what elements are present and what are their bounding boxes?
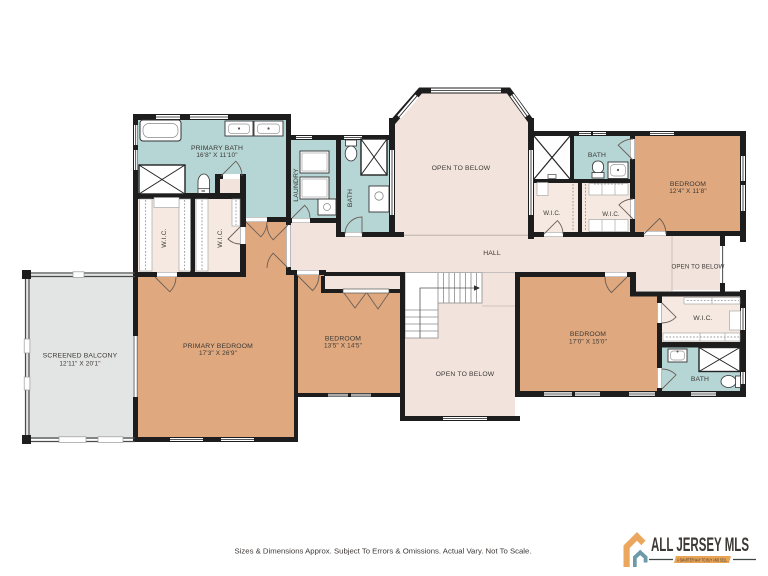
svg-text:17'3" X 26'9": 17'3" X 26'9": [199, 350, 237, 357]
svg-text:SCREENED BALCONY: SCREENED BALCONY: [43, 353, 118, 360]
svg-text:BEDROOM: BEDROOM: [570, 331, 606, 338]
svg-text:Sizes & Dimensions Approx. Sub: Sizes & Dimensions Approx. Subject To Er…: [235, 549, 532, 556]
svg-text:OPEN TO BELOW: OPEN TO BELOW: [432, 165, 491, 172]
svg-text:A SMARTER WAY TO BUY AND SELL: A SMARTER WAY TO BUY AND SELL: [677, 557, 727, 562]
svg-text:W.I.C.: W.I.C.: [543, 210, 561, 217]
svg-text:BEDROOM: BEDROOM: [670, 181, 706, 188]
svg-text:BATH: BATH: [588, 152, 606, 159]
svg-text:BATH: BATH: [347, 189, 354, 207]
svg-text:12'4" X 11'8": 12'4" X 11'8": [669, 188, 707, 195]
svg-text:12'11" X 20'1": 12'11" X 20'1": [59, 361, 100, 368]
svg-text:HALL: HALL: [483, 250, 501, 257]
svg-text:OPEN TO BELOW: OPEN TO BELOW: [672, 265, 725, 271]
svg-text:W.I.C.: W.I.C.: [693, 315, 712, 322]
svg-text:BATH: BATH: [691, 376, 709, 383]
svg-text:PRIMARY BATH: PRIMARY BATH: [191, 145, 243, 152]
svg-text:OPEN TO BELOW: OPEN TO BELOW: [436, 371, 495, 378]
svg-text:LAUNDRY: LAUNDRY: [293, 168, 300, 202]
svg-text:16'8" X 11'10": 16'8" X 11'10": [196, 152, 237, 159]
svg-text:13'5" X 14'5": 13'5" X 14'5": [324, 343, 362, 350]
svg-text:W.I.C.: W.I.C.: [217, 228, 224, 247]
svg-text:W.I.C.: W.I.C.: [161, 228, 168, 247]
svg-text:BEDROOM: BEDROOM: [325, 336, 361, 343]
svg-text:ALL JERSEY MLS: ALL JERSEY MLS: [651, 535, 749, 556]
svg-text:W.I.C.: W.I.C.: [602, 211, 620, 218]
svg-text:17'0" X 15'0": 17'0" X 15'0": [569, 339, 607, 346]
svg-text:PRIMARY BEDROOM: PRIMARY BEDROOM: [183, 343, 253, 350]
